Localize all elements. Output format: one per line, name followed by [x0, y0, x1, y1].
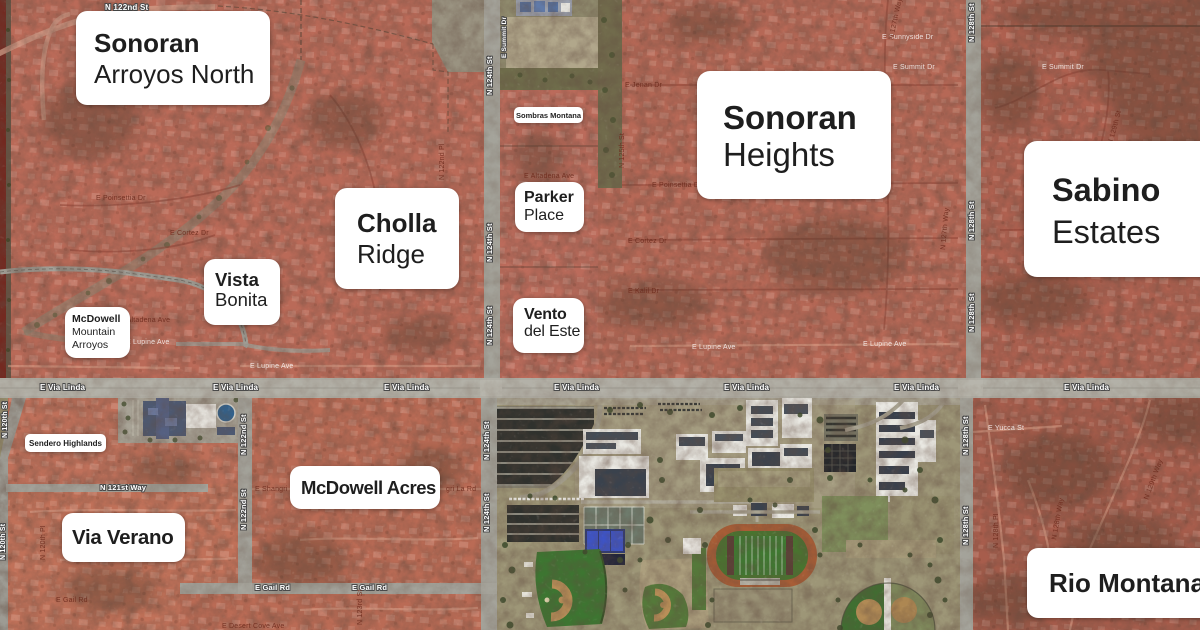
- svg-text:E Lupine Ave: E Lupine Ave: [250, 363, 294, 370]
- svg-text:E Via Linda: E Via Linda: [894, 383, 940, 392]
- svg-text:N 128th St: N 128th St: [961, 416, 970, 455]
- svg-text:E Via Linda: E Via Linda: [213, 383, 259, 392]
- svg-text:N 121st Way: N 121st Way: [100, 483, 147, 492]
- svg-text:E Lupine Ave: E Lupine Ave: [126, 339, 170, 346]
- svg-text:E Altadena Ave: E Altadena Ave: [524, 173, 574, 180]
- svg-text:E Kalil Dr: E Kalil Dr: [628, 288, 660, 295]
- svg-text:N 124th St: N 124th St: [485, 56, 494, 95]
- svg-text:N 122nd St: N 122nd St: [239, 489, 248, 530]
- svg-text:E Cortez Dr: E Cortez Dr: [170, 230, 209, 237]
- svg-text:E Gail Rd: E Gail Rd: [255, 583, 290, 592]
- svg-text:E Summit Dr: E Summit Dr: [1042, 64, 1084, 71]
- svg-text:E Summit Dr: E Summit Dr: [501, 17, 508, 58]
- svg-text:E Cortez Dr: E Cortez Dr: [628, 238, 667, 245]
- svg-text:N 124th St: N 124th St: [482, 493, 491, 532]
- svg-text:E Lupine Ave: E Lupine Ave: [692, 344, 736, 351]
- svg-text:E Via Linda: E Via Linda: [554, 383, 600, 392]
- svg-text:E Desert Cove Ave: E Desert Cove Ave: [222, 623, 284, 630]
- svg-text:E Via Linda: E Via Linda: [1064, 383, 1110, 392]
- svg-text:N 124th St: N 124th St: [485, 223, 494, 262]
- svg-text:N 124th St: N 124th St: [482, 421, 491, 460]
- svg-text:N 128th St: N 128th St: [961, 506, 970, 545]
- svg-text:N 122nd St: N 122nd St: [239, 414, 248, 455]
- svg-text:N 128th St: N 128th St: [967, 201, 976, 240]
- svg-text:N 128th St: N 128th St: [967, 3, 976, 42]
- svg-text:N 123rd St: N 123rd St: [357, 590, 364, 625]
- svg-text:gri La Rd: gri La Rd: [446, 486, 476, 493]
- svg-text:N 120th St: N 120th St: [0, 523, 7, 560]
- svg-text:E Lupine Ave: E Lupine Ave: [863, 341, 907, 348]
- svg-text:E Poinsettia Dr: E Poinsettia Dr: [652, 182, 702, 189]
- svg-text:N 125th St: N 125th St: [619, 133, 626, 168]
- svg-text:E Gail Rd: E Gail Rd: [56, 597, 88, 604]
- svg-text:E Summit Dr: E Summit Dr: [893, 64, 935, 71]
- svg-text:N 124th St: N 124th St: [485, 306, 494, 345]
- svg-text:N 128th Pl: N 128th Pl: [993, 513, 1000, 548]
- svg-text:N 120th St: N 120th St: [2, 401, 9, 438]
- svg-text:E Via Linda: E Via Linda: [724, 383, 770, 392]
- svg-text:N 128th St: N 128th St: [967, 293, 976, 332]
- svg-text:E Via Linda: E Via Linda: [40, 383, 86, 392]
- svg-text:N 120th Pl: N 120th Pl: [40, 525, 47, 560]
- svg-text:E Yucca St: E Yucca St: [988, 425, 1024, 432]
- svg-text:E Via Linda: E Via Linda: [384, 383, 430, 392]
- svg-text:E Jenan Dr: E Jenan Dr: [625, 82, 662, 89]
- svg-text:E Poinsettia Dr: E Poinsettia Dr: [96, 195, 146, 202]
- svg-text:N 122nd Pl: N 122nd Pl: [439, 143, 446, 180]
